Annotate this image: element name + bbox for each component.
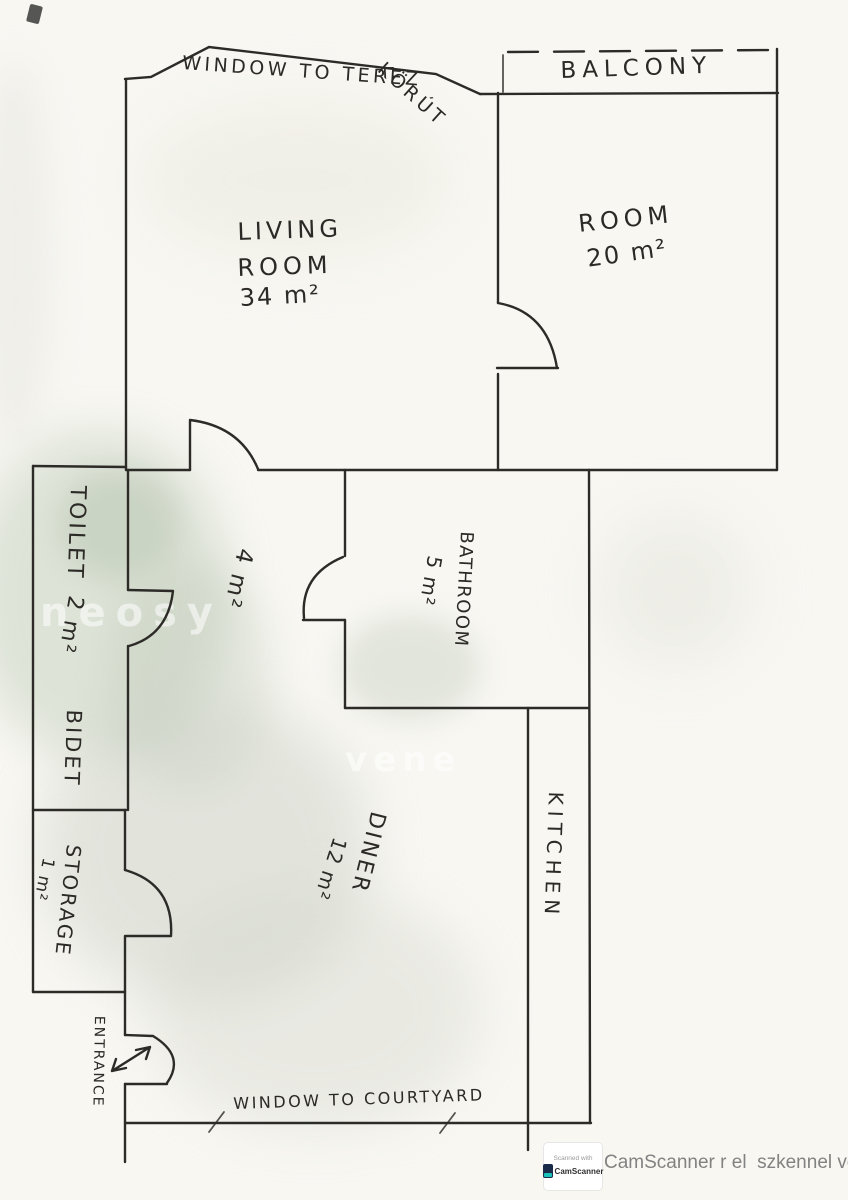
camscanner-logo-icon bbox=[543, 1164, 553, 1178]
windows bbox=[209, 50, 770, 1133]
camscanner-badge: Scanned with CamScanner bbox=[544, 1143, 602, 1190]
door-living bbox=[190, 420, 258, 470]
wall-toilet-top bbox=[33, 466, 126, 467]
wall-bathroom-kitchen-right bbox=[589, 470, 590, 1123]
doors bbox=[125, 303, 558, 1084]
living-room-label-2: ROOM bbox=[237, 251, 333, 282]
door-room bbox=[497, 303, 558, 368]
living-room-label: LIVING bbox=[237, 214, 342, 246]
toilet-label: TOILET bbox=[62, 485, 90, 581]
balcony-railing bbox=[508, 50, 770, 52]
door-storage bbox=[125, 870, 171, 936]
balcony-label: BALCONY bbox=[560, 53, 713, 84]
camscanner-caption: CamScanner r el szkennel ve bbox=[604, 1152, 848, 1174]
badge-camscanner-text: CamScanner bbox=[555, 1167, 604, 1176]
wall-top bbox=[480, 93, 778, 94]
living-room-area: 34 m² bbox=[239, 280, 322, 312]
badge-scanned-with-text: Scanned with bbox=[553, 1155, 592, 1162]
kitchen-label: KITCHEN bbox=[540, 791, 568, 920]
door-bathroom bbox=[303, 557, 345, 620]
bidet-label: BIDET bbox=[59, 709, 86, 788]
entrance-label: ENTRANCE bbox=[89, 1016, 107, 1108]
entrance-arrow-icon bbox=[112, 1047, 150, 1071]
door-toilet bbox=[128, 590, 173, 646]
